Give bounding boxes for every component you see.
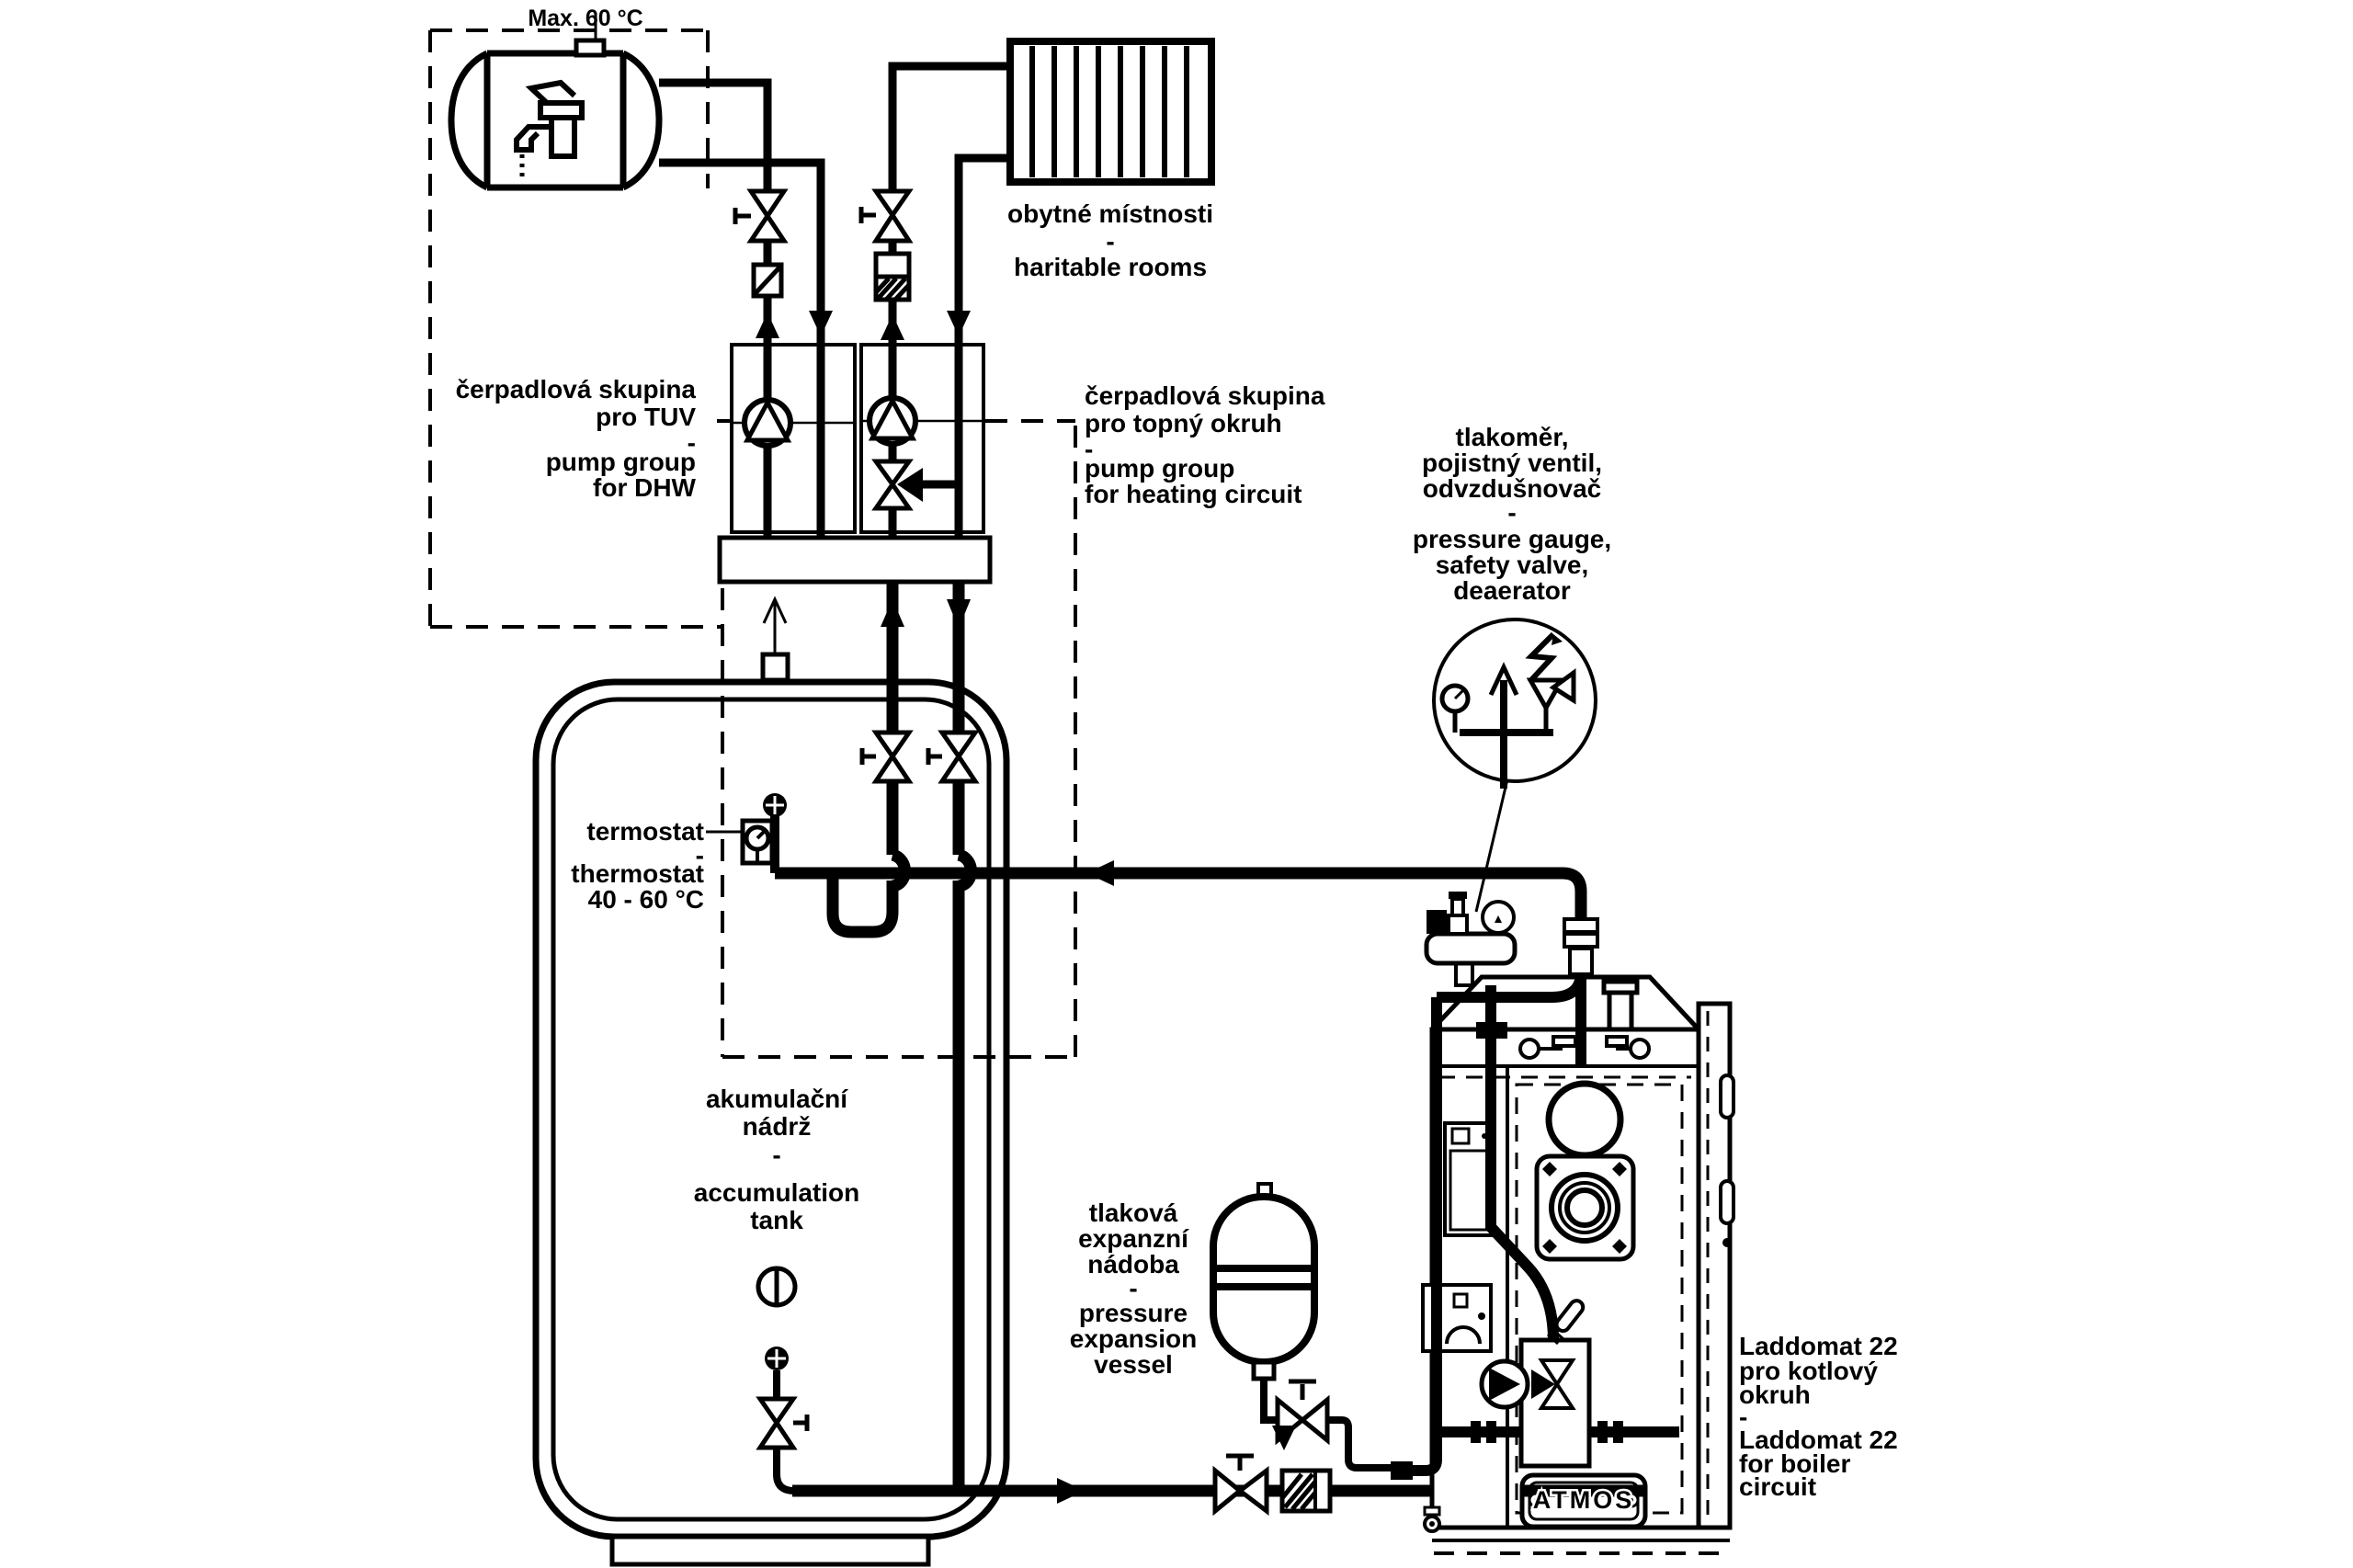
arrow-down-heating-return — [947, 311, 971, 336]
dhw-tank — [451, 13, 659, 187]
label-safety-group: tlakoměr, pojistný ventil, odvzdušnovač … — [1413, 423, 1611, 605]
label-thermostat: termostat - thermostat 40 - 60 °C — [571, 817, 704, 914]
pump-icon-heating — [870, 398, 915, 444]
dhw-group-line1: čerpadlová skupina — [456, 375, 697, 403]
tank-riser-valve-return — [928, 733, 975, 781]
arrow-left-hot-main — [1086, 860, 1114, 886]
tank-plinth — [612, 1537, 928, 1564]
dhw-pump-module — [732, 345, 855, 532]
heating-shutoff-valve — [861, 191, 909, 241]
tank-sep: - — [772, 1141, 780, 1169]
expansion-line5: expansion — [1070, 1324, 1197, 1353]
label-max-temp: Max. 60 °C — [528, 6, 642, 31]
arrow-up-heating-supply — [881, 314, 904, 340]
dhw-shutoff-valve — [735, 191, 784, 241]
atmos-plate: ATMOS — [1522, 1475, 1645, 1527]
thermostat-assembly — [706, 793, 787, 873]
laddomat-line6: circuit — [1739, 1472, 1816, 1501]
expansion-line1: tlaková — [1089, 1199, 1178, 1227]
label-dhw-pump-group: čerpadlová skupina pro TUV - pump group … — [456, 375, 697, 502]
tank-riser-valve-supply — [862, 733, 909, 781]
heating-schematic: ATMOS Max. 60 °C čerpadlová skupina pro … — [0, 0, 2353, 1568]
expansion-line2: expanzní — [1078, 1224, 1189, 1253]
upper-door-port — [1549, 1084, 1620, 1155]
boiler-drain — [1425, 1507, 1439, 1531]
diagram-page: ATMOS Max. 60 °C čerpadlová skupina pro … — [0, 0, 2353, 1568]
dhw-group-line3: pump group — [546, 448, 696, 476]
safety-group-unit — [1427, 892, 1515, 985]
tank-line1: akumulační — [706, 1085, 848, 1113]
heating-pump-module — [861, 345, 983, 532]
expansion-vessel — [1213, 1184, 1392, 1468]
heating-group-line3: pump group — [1085, 454, 1234, 483]
safety-sep: - — [1507, 498, 1516, 527]
max-temp-text: Max. 60 °C — [528, 6, 642, 31]
tank-sensor — [758, 1268, 795, 1305]
arrow-down-dhw-return — [809, 311, 833, 336]
laddomat-line3: okruh — [1739, 1381, 1811, 1409]
tank-line3: accumulation — [694, 1178, 859, 1207]
dhw-group-line4: for DHW — [593, 473, 697, 502]
safety-line6: deaerator — [1453, 576, 1571, 605]
check-valve — [754, 265, 781, 296]
pump-base-manifold — [720, 538, 990, 582]
label-laddomat: Laddomat 22 pro kotlový okruh - Laddomat… — [1739, 1332, 1898, 1501]
pump-icon-dhw — [745, 400, 790, 446]
safety-line1: tlakoměr, — [1456, 423, 1569, 451]
label-expansion-vessel: tlaková expanzní nádoba - pressure expan… — [1070, 1199, 1197, 1379]
radiator — [1010, 41, 1211, 182]
wall-fitting — [1391, 1461, 1413, 1480]
rooms-line2: haritable rooms — [1014, 253, 1207, 281]
boiler-side-panel — [1699, 1004, 1733, 1528]
safety-line5: safety valve, — [1436, 551, 1589, 579]
tank-line2: nádrž — [743, 1112, 812, 1141]
tank-drain — [760, 1346, 807, 1491]
burner-flange — [1537, 1156, 1633, 1259]
laddomat-pump-icon — [1482, 1361, 1528, 1407]
safety-line4: pressure gauge, — [1413, 525, 1611, 553]
chimney-stub — [1604, 982, 1637, 1029]
faucet-icon — [517, 83, 582, 176]
arrow-down-into-tank — [947, 599, 971, 629]
safety-line2: pojistný ventil, — [1422, 449, 1602, 477]
arrow-right-return-main — [1057, 1478, 1085, 1504]
outlet-union — [1564, 919, 1597, 974]
dhw-group-line2: pro TUV — [596, 403, 696, 431]
gauge-icon — [1442, 686, 1468, 711]
dhw-tank-cap — [576, 40, 604, 55]
riser-flange — [1476, 1022, 1507, 1039]
rooms-sep: - — [1106, 227, 1114, 256]
thermostat-line2: thermostat — [571, 859, 704, 888]
heating-group-line2: pro topný okruh — [1085, 409, 1282, 437]
label-accumulation-tank: akumulační nádrž - accumulation tank — [694, 1085, 859, 1234]
thermostat-range: 40 - 60 °C — [588, 885, 704, 914]
expansion-line6: vessel — [1094, 1350, 1173, 1379]
tank-vent — [763, 599, 788, 680]
three-way-valve — [876, 461, 959, 508]
return-main-filter — [1282, 1471, 1330, 1511]
tank-line4: tank — [750, 1206, 803, 1234]
arrow-up-dhw-supply — [756, 312, 779, 338]
thermostat-line1: termostat — [586, 817, 704, 846]
return-main-valve — [1215, 1456, 1267, 1511]
boiler-brand-label: ATMOS — [1533, 1486, 1635, 1514]
expansion-line4: pressure — [1079, 1299, 1188, 1327]
heating-group-line4: for heating circuit — [1085, 480, 1302, 508]
arrow-up-into-manifold — [881, 599, 904, 627]
label-rooms: obytné místnosti - haritable rooms — [1007, 199, 1213, 281]
filter — [876, 254, 909, 300]
label-heating-pump-group: čerpadlová skupina pro topný okruh - pum… — [1085, 381, 1325, 508]
heating-group-line1: čerpadlová skupina — [1085, 381, 1325, 410]
rooms-line1: obytné místnosti — [1007, 199, 1213, 228]
